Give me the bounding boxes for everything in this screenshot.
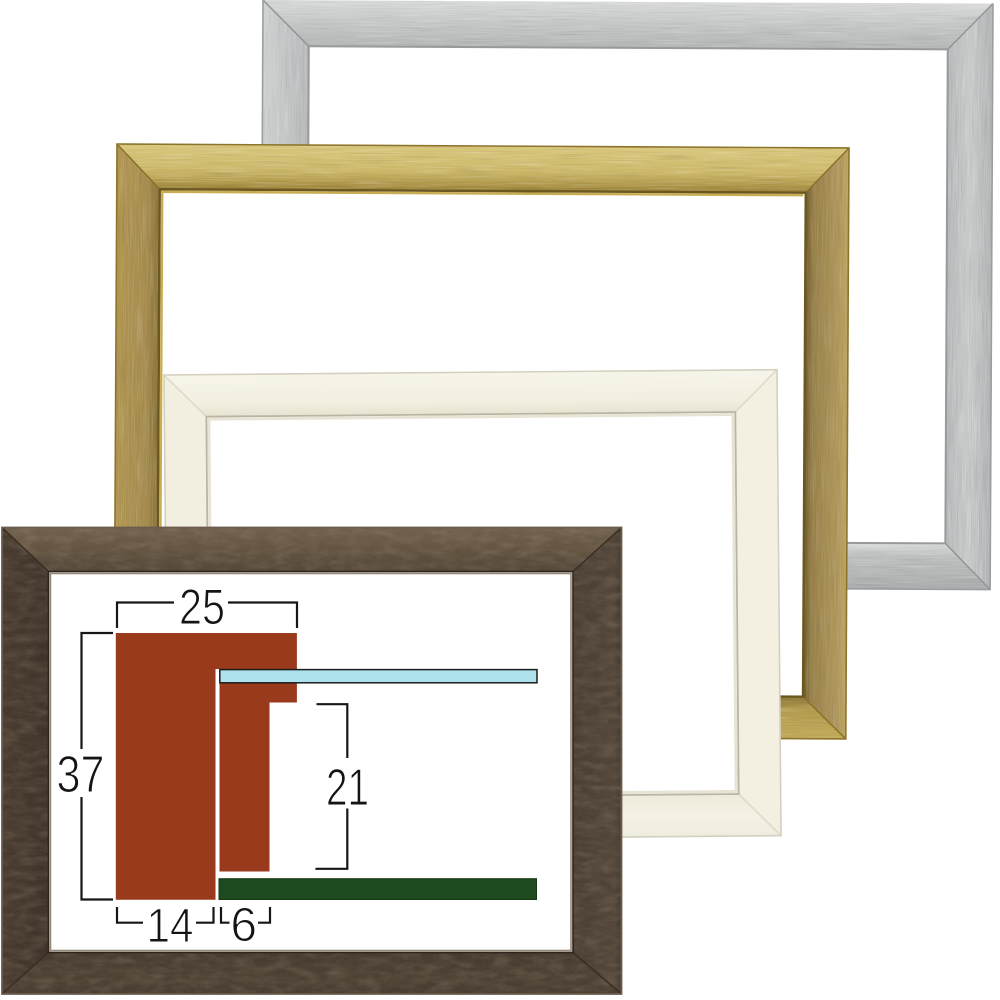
svg-text:37: 37 bbox=[57, 746, 105, 804]
svg-text:6: 6 bbox=[230, 899, 257, 952]
svg-text:14: 14 bbox=[147, 900, 194, 953]
svg-text:21: 21 bbox=[326, 759, 369, 817]
svg-text:25: 25 bbox=[179, 579, 225, 635]
